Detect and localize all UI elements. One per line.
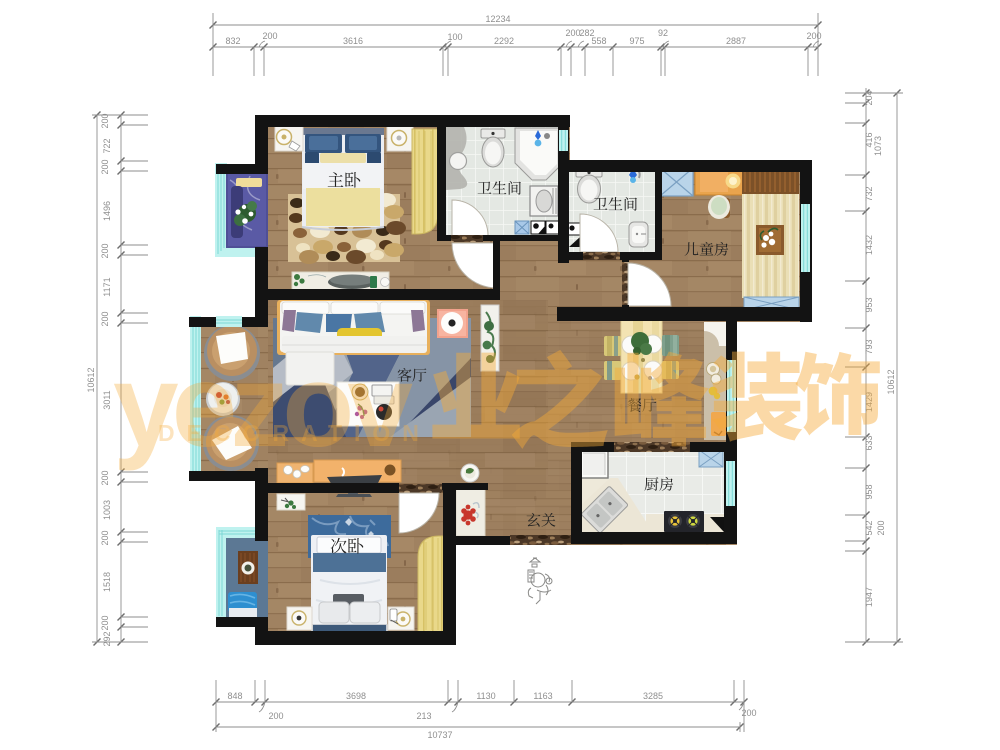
- svg-text:200: 200: [565, 28, 580, 38]
- svg-text:200: 200: [268, 711, 283, 721]
- svg-text:3616: 3616: [343, 36, 363, 46]
- svg-text:793: 793: [864, 339, 874, 354]
- svg-text:832: 832: [225, 36, 240, 46]
- svg-text:292: 292: [102, 631, 112, 646]
- svg-text:1073: 1073: [873, 136, 883, 156]
- svg-text:200: 200: [100, 530, 110, 545]
- svg-text:200: 200: [100, 243, 110, 258]
- svg-text:200: 200: [100, 311, 110, 326]
- svg-text:3011: 3011: [102, 390, 112, 409]
- svg-text:282: 282: [579, 28, 594, 38]
- svg-text:1518: 1518: [102, 572, 112, 592]
- svg-text:542: 542: [864, 520, 874, 535]
- svg-text:722: 722: [102, 138, 112, 153]
- svg-text:1163: 1163: [533, 691, 552, 701]
- svg-text:953: 953: [864, 297, 874, 312]
- svg-text:1171: 1171: [102, 277, 112, 296]
- svg-text:12234: 12234: [485, 14, 510, 24]
- svg-text:200: 200: [100, 470, 110, 485]
- svg-text:958: 958: [864, 484, 874, 499]
- svg-text:10737: 10737: [427, 730, 452, 740]
- svg-text:633: 633: [864, 435, 874, 450]
- svg-text:1947: 1947: [864, 587, 874, 607]
- svg-text:1003: 1003: [102, 500, 112, 520]
- svg-text:1432: 1432: [864, 235, 874, 255]
- svg-text:3698: 3698: [346, 691, 366, 701]
- svg-text:200: 200: [806, 31, 821, 41]
- svg-text:DECORATION: DECORATION: [158, 420, 431, 446]
- svg-text:975: 975: [629, 36, 644, 46]
- svg-text:2292: 2292: [494, 36, 514, 46]
- svg-text:200: 200: [741, 708, 756, 718]
- svg-text:200: 200: [876, 520, 886, 535]
- svg-text:3285: 3285: [643, 691, 663, 701]
- svg-text:100: 100: [447, 32, 462, 42]
- svg-text:732: 732: [864, 186, 874, 201]
- svg-text:848: 848: [227, 691, 242, 701]
- svg-text:200: 200: [262, 31, 277, 41]
- svg-text:200: 200: [100, 113, 110, 128]
- svg-text:yezov: yezov: [113, 340, 413, 472]
- svg-text:2887: 2887: [726, 36, 746, 46]
- svg-text:1496: 1496: [102, 201, 112, 221]
- svg-text:10612: 10612: [886, 369, 896, 394]
- svg-text:92: 92: [658, 28, 668, 38]
- svg-text:204: 204: [864, 90, 874, 105]
- svg-text:200: 200: [100, 159, 110, 174]
- svg-text:200: 200: [100, 615, 110, 630]
- svg-text:1130: 1130: [476, 691, 495, 701]
- svg-text:213: 213: [416, 711, 431, 721]
- svg-text:10612: 10612: [86, 367, 96, 392]
